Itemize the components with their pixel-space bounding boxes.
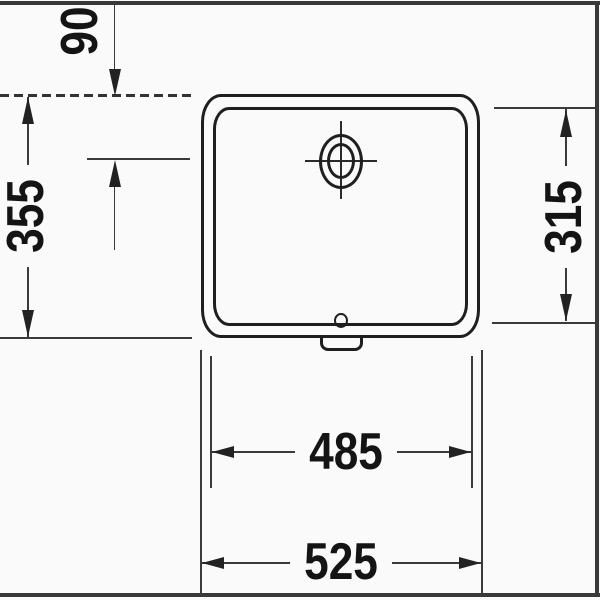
dim-485-arrow-left [212,446,234,458]
dim-90-leader-bottom-line [114,187,116,250]
frame-border-bottom [0,593,600,597]
dim-525-label: 525 [290,537,392,587]
overflow-slot-tab [320,337,363,351]
drain-centerline-extension [87,158,190,160]
dim-485-label: 485 [295,427,397,477]
technical-drawing-canvas: 90 355 315 485 525 [0,0,600,600]
dim-355-arrow-down [22,310,34,337]
dim-485-extension-left [210,356,212,488]
dim-315-arrow-up [560,110,572,137]
dim-485-arrow-right [449,446,471,458]
dim-355-label: 355 [1,165,51,267]
extension-line-bottom-left [0,337,192,339]
dim-525-arrow-left [202,557,224,569]
dim-355-arrow-up [22,97,34,124]
dim-315-label: 315 [539,166,589,268]
dim-90-leader-top-line [114,3,116,70]
dim-315-extension-bottom [492,322,597,324]
frame-border-right [595,1,599,597]
dim-90-arrow-down [109,69,121,96]
dim-525-extension-right [481,350,483,595]
drain-inner-circle [327,143,355,179]
dim-90-arrow-up [109,160,121,187]
dim-315-extension-top [494,107,597,109]
dim-525-arrow-right [459,557,481,569]
dim-90-label: 90 [55,0,105,82]
fixing-hole-marker [334,313,348,328]
dim-315-arrow-down [560,294,572,321]
dim-485-extension-right [471,356,473,488]
